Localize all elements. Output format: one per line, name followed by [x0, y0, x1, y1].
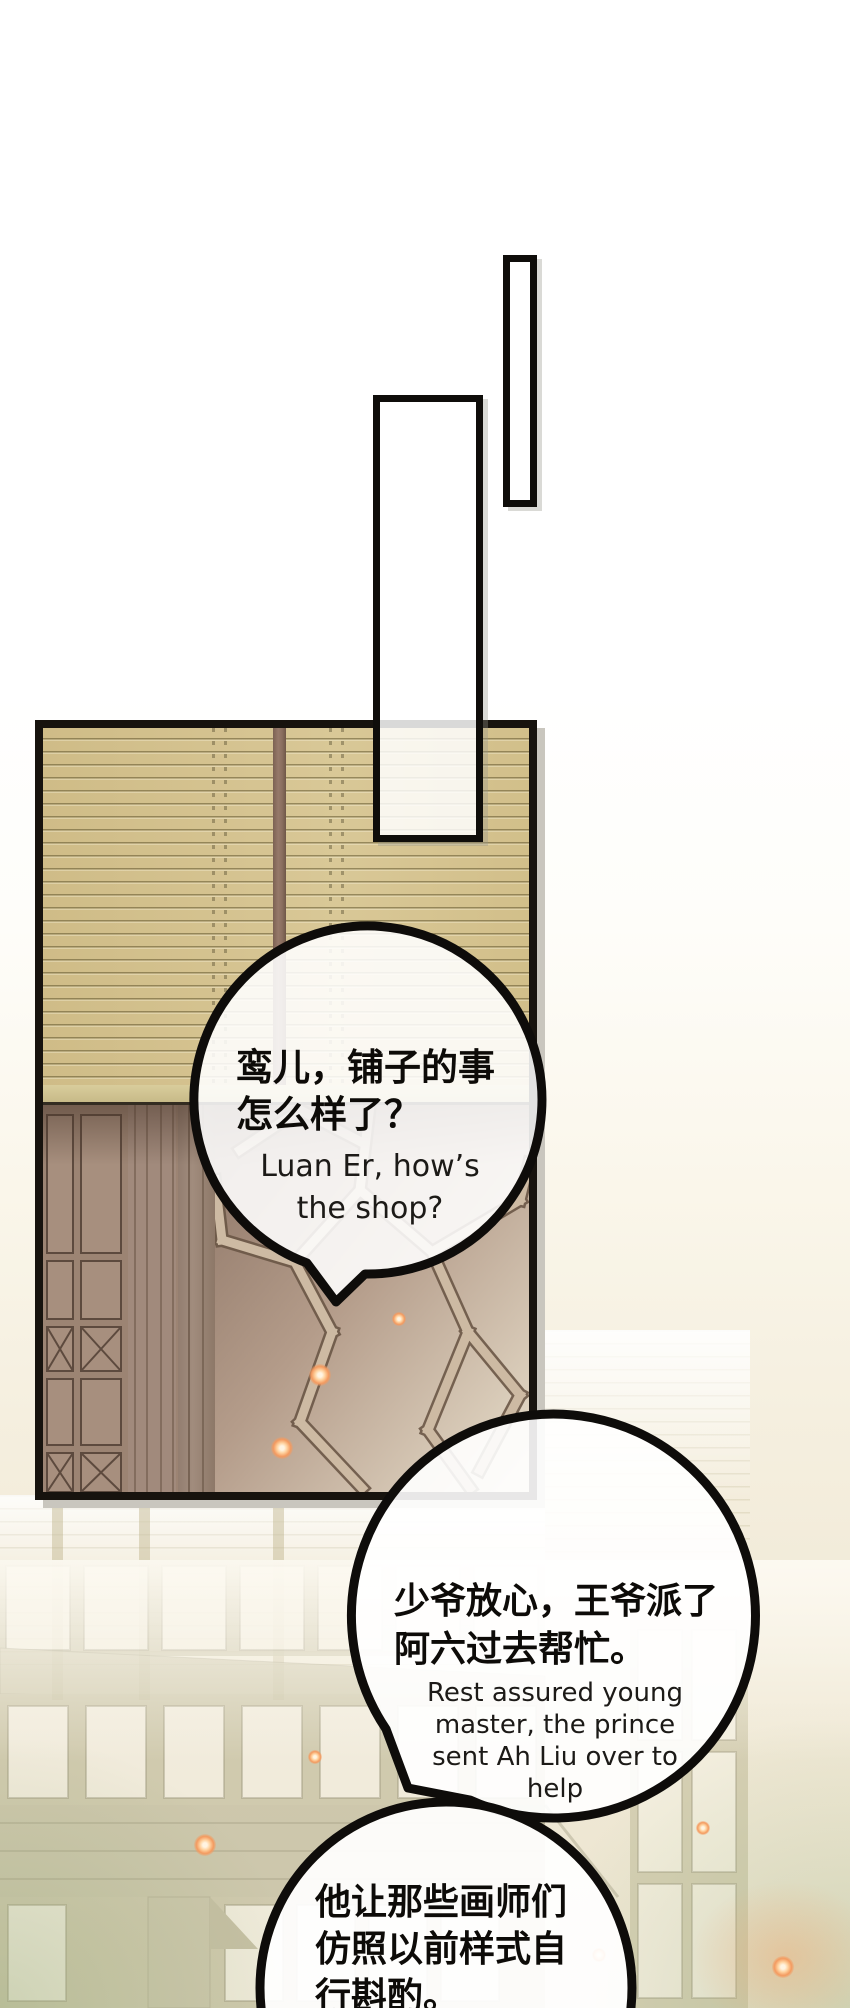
dialogue-line: Luan Er, how’s — [205, 1146, 535, 1188]
dialogue-line: 少爷放心，王爷派了 — [394, 1578, 718, 1626]
bubble3-chinese-text: 他让那些画师们 仿照以前样式自 行斟酌。 — [315, 1879, 567, 2008]
dialogue-line: master, the prince — [405, 1709, 705, 1741]
dialogue-line: help — [405, 1773, 705, 1805]
dialogue-line: 怎么样了？ — [236, 1091, 495, 1138]
dialogue-line: 他让那些画师们 — [315, 1879, 567, 1926]
bubble1-chinese-text: 鸾儿，铺子的事 怎么样了？ — [236, 1044, 495, 1138]
dialogue-line: 鸾儿，铺子的事 — [236, 1044, 495, 1091]
bubble2-chinese-text: 少爷放心，王爷派了 阿六过去帮忙。 — [394, 1578, 718, 1674]
dialogue-line: 行斟酌。 — [315, 1973, 567, 2008]
bubble1-english-text: Luan Er, how’s the shop? — [205, 1146, 535, 1230]
dialogue-line: sent Ah Liu over to — [405, 1741, 705, 1773]
dialogue-line: 阿六过去帮忙。 — [394, 1626, 718, 1674]
dialogue-line: Rest assured young — [405, 1677, 705, 1709]
dialogue-line: 仿照以前样式自 — [315, 1926, 567, 1973]
bubble2-english-text: Rest assured young master, the prince se… — [405, 1677, 705, 1805]
comic-page: 鸾儿，铺子的事 怎么样了？ Luan Er, how’s the shop? 少… — [0, 0, 850, 2008]
dialogue-line: the shop? — [205, 1188, 535, 1230]
